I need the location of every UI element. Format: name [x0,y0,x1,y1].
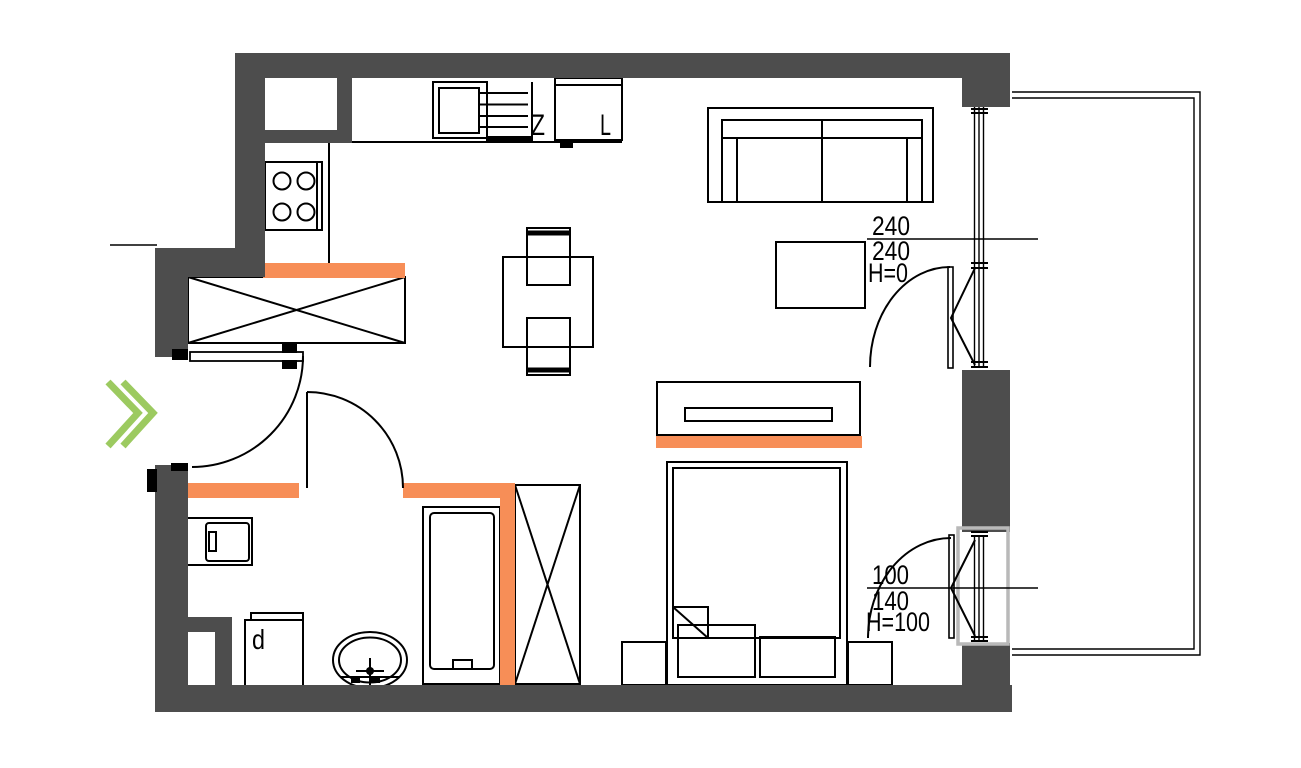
floor-plan-svg: Z L [0,0,1301,768]
entry-door-jamb [172,349,188,360]
wall-left-bar [155,248,265,277]
dim-bedroom-window-sill: H=100 [866,607,930,637]
sofa-cushions [722,120,922,202]
bed [667,462,847,685]
living-room [503,108,933,375]
wall-kitchen-left [235,53,265,250]
sofa [708,108,933,202]
entry-door-leaf [190,352,303,361]
fridge-label: L [600,109,611,142]
wall-niche-bottom [265,130,352,143]
wall-duct-column [215,632,232,685]
sink-basin [439,88,479,133]
sofa-frame [708,108,933,202]
washbasin [187,518,252,565]
fridge: L [555,78,622,148]
accent-wall-headboard [656,436,862,448]
bench-left [622,642,666,685]
wall-top [235,53,962,78]
bench-right [848,642,892,685]
bathroom: d [187,485,580,688]
accent-walls [187,263,862,685]
toilet-drain [366,667,374,675]
shower-drain [453,660,472,669]
wall-duct-bar [187,617,232,632]
stove-body [265,162,322,230]
dining-set [503,228,593,375]
mattress [673,468,840,638]
balcony-outline-outer [1012,92,1200,655]
wall-left-lower [155,465,188,712]
cabinet-d-lid [251,613,303,620]
bed-frame [667,462,847,685]
floor-plan: Z L [0,0,1301,768]
burner [274,204,291,221]
accent-wall-kitchen [263,263,405,278]
balcony [1012,92,1200,655]
bed-foot-right [760,637,835,677]
wardrobe-crossed [515,485,580,684]
washbasin-tap [209,532,216,551]
shower-tray [430,513,494,669]
wall-bottom [155,685,1012,712]
washbasin-counter [187,518,252,565]
shower-outer [423,507,500,684]
bathroom-door-swing-arc [307,392,403,488]
dining-table [503,257,593,347]
fridge-body [555,78,622,140]
cabinet-d-label: d [252,624,265,655]
wall-right-bottom-post [962,643,1010,712]
entry-door-swing-arc [192,356,303,467]
toilet-mark [351,677,360,683]
balcony-outline-inner [1012,98,1194,649]
kitchen-sink: Z [433,82,545,142]
fridge-tick [560,143,573,148]
washbasin-bowl [206,523,249,561]
bathroom-cabinet: d [245,613,303,687]
accent-wall-bath-vertical [500,497,515,685]
side-table [776,242,865,308]
stove [265,162,322,230]
wall-niche-right [337,78,352,130]
burner [298,204,315,221]
bedroom [622,382,892,685]
wall-left-upper [155,277,188,357]
tv-shelf [657,382,860,435]
burner [274,173,291,190]
balcony-door-open-symbol [951,268,975,365]
entry-direction-icon [108,382,153,446]
kitchen-cabinet-crossed [188,277,405,343]
accent-wall-bath-right [403,483,515,498]
entry-door-stop [282,360,297,369]
shower [423,507,500,684]
wall-corner-post-top [962,53,1010,107]
sink-label: Z [531,109,545,142]
burner [298,173,315,190]
wall-right-mid [962,370,1010,532]
bed-foot-left [678,625,755,677]
tv-shelf-inner [685,408,832,421]
doors [147,344,403,492]
toilet-mark [371,677,380,683]
toilet [333,632,407,688]
accent-wall-bath-left [187,483,299,498]
entry-door-jamb [147,469,157,492]
entry-door-stop [282,344,297,353]
drainer-edge [487,136,532,141]
entry-door-jamb [171,463,188,471]
dim-balcony-door-sill: H=0 [868,258,908,288]
